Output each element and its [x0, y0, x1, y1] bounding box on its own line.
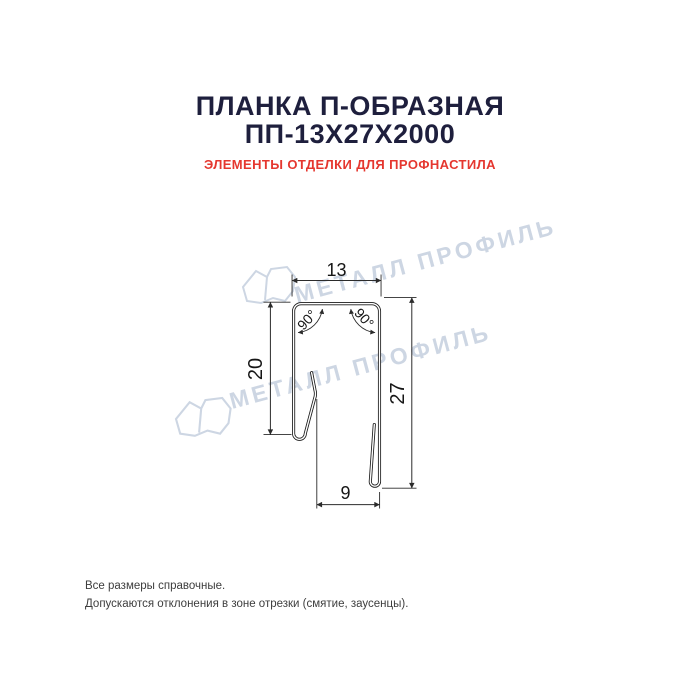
dim-label-20: 20 [245, 358, 267, 380]
angle-label-left: 90° [294, 307, 320, 333]
metall-profil-logo-icon [243, 267, 295, 303]
watermark-lower: МЕТАЛЛ ПРОФИЛЬ [176, 319, 494, 436]
footer-notes: Все размеры справочные. Допускаются откл… [85, 577, 408, 613]
angle-annotation-left: 90° [294, 307, 323, 333]
footer-note-2: Допускаются отклонения в зоне отрезки (с… [85, 595, 408, 613]
footer-note-1: Все размеры справочные. [85, 577, 408, 595]
angle-label-right: 90° [351, 305, 377, 331]
watermark-upper: МЕТАЛЛ ПРОФИЛЬ [243, 213, 559, 308]
dim-label-13: 13 [326, 260, 346, 280]
metall-profil-logo-icon [176, 398, 231, 436]
dimension-left-height: 20 [245, 302, 292, 434]
dimension-right-height: 27 [382, 298, 417, 489]
dim-label-9: 9 [340, 483, 350, 503]
angle-annotation-right: 90° [351, 305, 378, 333]
dim-label-27: 27 [387, 382, 409, 404]
dimension-bottom-opening: 9 [317, 399, 380, 509]
